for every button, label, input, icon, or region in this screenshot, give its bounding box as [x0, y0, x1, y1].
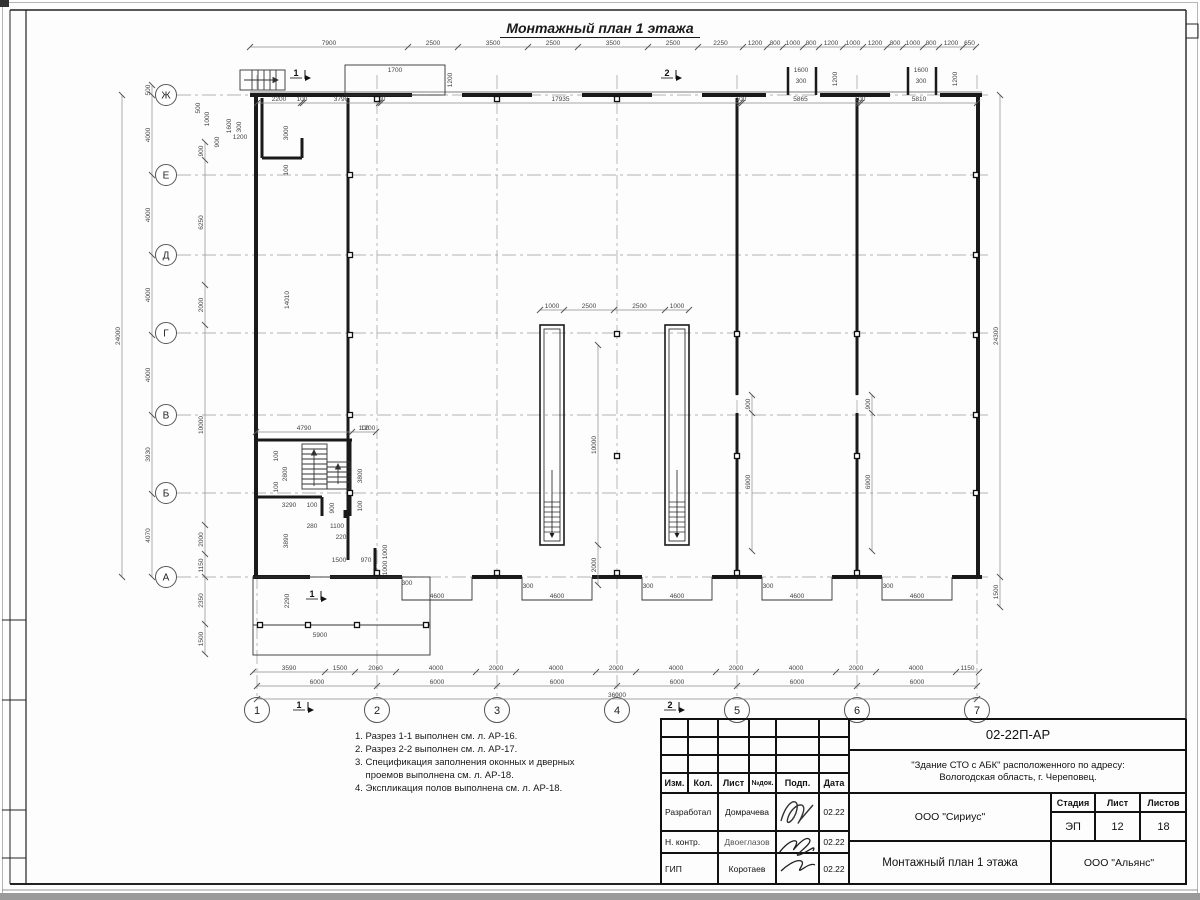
svg-text:6000: 6000 [670, 679, 685, 686]
axis-letter-Б: Б [163, 489, 170, 500]
drawing-sheet: ЖЕДГВБА1234567 [0, 0, 1200, 900]
svg-text:3930: 3930 [145, 447, 152, 462]
svg-text:10000: 10000 [591, 436, 598, 454]
axis-number-7: 7 [974, 705, 980, 717]
svg-text:2000: 2000 [609, 665, 624, 672]
axis-number-4: 4 [614, 705, 620, 717]
axis-number-3: 3 [494, 705, 500, 717]
sheet-number: 12 [1095, 812, 1140, 841]
svg-text:6000: 6000 [310, 679, 325, 686]
svg-text:2500: 2500 [546, 40, 561, 47]
svg-text:300: 300 [236, 121, 243, 132]
axis-letter-Е: Е [163, 171, 170, 182]
svg-text:1000: 1000 [846, 40, 861, 47]
svg-text:800: 800 [890, 40, 901, 47]
svg-text:1200: 1200 [824, 40, 839, 47]
axis-letter-В: В [163, 411, 170, 422]
axis-letter-Ж: Ж [161, 91, 171, 102]
svg-text:2060: 2060 [368, 665, 383, 672]
svg-text:2000: 2000 [849, 665, 864, 672]
svg-text:1500: 1500 [333, 665, 348, 672]
col-list: Лист [718, 773, 749, 793]
svg-text:970: 970 [361, 557, 372, 564]
svg-text:1000: 1000 [545, 303, 560, 310]
col-data: Дата [819, 773, 849, 793]
project-name: "Здание СТО с АБК" расположенного по адр… [849, 750, 1187, 793]
svg-text:24000: 24000 [115, 327, 122, 345]
svg-text:1600: 1600 [794, 67, 809, 74]
svg-text:100: 100 [297, 96, 308, 103]
svg-text:4000: 4000 [145, 287, 152, 302]
svg-text:900: 900 [198, 145, 205, 156]
row-developer-name: Домрачева [718, 793, 776, 831]
svg-text:1100: 1100 [330, 523, 344, 530]
svg-text:1200: 1200 [447, 72, 454, 87]
svg-text:900: 900 [865, 398, 872, 409]
row-ncontr-name: Двоеглазов [718, 831, 776, 853]
svg-text:2250: 2250 [713, 40, 728, 47]
svg-text:100: 100 [283, 164, 290, 175]
row-gip-signature [776, 853, 819, 885]
svg-text:500: 500 [195, 102, 202, 113]
svg-text:1600: 1600 [226, 118, 233, 133]
svg-text:1000: 1000 [786, 40, 801, 47]
page-title: Монтажный план 1 этажа [0, 20, 1200, 36]
svg-text:1200: 1200 [361, 425, 376, 432]
svg-text:17935: 17935 [551, 96, 569, 103]
svg-text:900: 900 [214, 136, 221, 147]
svg-text:2200: 2200 [272, 96, 287, 103]
svg-text:900: 900 [329, 502, 336, 513]
svg-text:5865: 5865 [793, 96, 808, 103]
svg-text:1500: 1500 [198, 631, 205, 646]
svg-text:2000: 2000 [489, 665, 504, 672]
section-mark-1: 1 [309, 589, 314, 599]
drawing-title: Монтажный план 1 этажа [849, 841, 1051, 885]
svg-text:2500: 2500 [582, 303, 597, 310]
section-mark-2: 2 [667, 700, 672, 710]
section-mark-1: 1 [293, 68, 298, 78]
contractor-org: ООО "Альянс" [1051, 841, 1187, 885]
svg-text:100: 100 [307, 502, 318, 509]
svg-text:100: 100 [273, 450, 280, 461]
svg-text:100: 100 [273, 481, 280, 492]
col-izm: Изм. [661, 773, 688, 793]
row-gip-role: ГИП [661, 853, 718, 885]
svg-text:1000: 1000 [204, 111, 211, 126]
row-developer-signature [776, 793, 819, 831]
svg-text:800: 800 [806, 40, 817, 47]
svg-text:2350: 2350 [198, 593, 205, 608]
svg-text:1200: 1200 [944, 40, 959, 47]
row-ncontr-role: Н. контр. [661, 831, 718, 853]
svg-text:4000: 4000 [909, 665, 924, 672]
svg-text:1500: 1500 [332, 557, 347, 564]
svg-text:4600: 4600 [430, 593, 445, 600]
svg-text:1150: 1150 [961, 665, 975, 672]
svg-text:1200: 1200 [233, 134, 248, 141]
svg-text:10000: 10000 [198, 416, 205, 434]
shaft-right [665, 325, 689, 545]
svg-text:300: 300 [796, 78, 807, 85]
svg-text:1000: 1000 [382, 560, 389, 575]
svg-text:4000: 4000 [789, 665, 804, 672]
svg-text:1200: 1200 [832, 71, 839, 86]
axis-letter-Д: Д [163, 251, 170, 262]
svg-text:6250: 6250 [198, 215, 205, 230]
dimensions-layer: 7900250035002500350025002250120080010008… [115, 40, 1003, 702]
svg-text:6900: 6900 [745, 474, 752, 489]
stage-label: Стадия [1051, 793, 1095, 812]
axis-number-5: 5 [734, 705, 740, 717]
svg-text:280: 280 [307, 523, 318, 530]
svg-text:300: 300 [916, 78, 927, 85]
svg-text:2500: 2500 [426, 40, 441, 47]
col-ndok: №док. [749, 773, 776, 793]
svg-text:300: 300 [763, 583, 774, 590]
svg-text:900: 900 [745, 398, 752, 409]
svg-text:1150: 1150 [198, 558, 205, 572]
svg-text:800: 800 [770, 40, 781, 47]
svg-text:4000: 4000 [549, 665, 564, 672]
svg-text:1700: 1700 [388, 67, 403, 74]
doc-code: 02-22П-АР [849, 719, 1187, 750]
svg-text:3800: 3800 [357, 468, 364, 483]
svg-text:4790: 4790 [297, 425, 312, 432]
svg-text:4070: 4070 [145, 528, 152, 543]
section-mark-1: 1 [296, 700, 301, 710]
svg-text:2500: 2500 [632, 303, 647, 310]
row-ncontr-date: 02.22 [819, 831, 849, 853]
axis-number-6: 6 [854, 705, 860, 717]
svg-text:2000: 2000 [591, 557, 598, 572]
svg-text:300: 300 [402, 580, 413, 587]
svg-text:1200: 1200 [748, 40, 763, 47]
svg-text:800: 800 [926, 40, 937, 47]
svg-text:6900: 6900 [865, 474, 872, 489]
axis-letter-А: А [163, 573, 170, 584]
svg-text:1200: 1200 [868, 40, 883, 47]
row-gip-name: Коротаев [718, 853, 776, 885]
axis-number-2: 2 [374, 705, 380, 717]
svg-text:100: 100 [736, 96, 747, 103]
row-ncontr-signature [776, 831, 819, 853]
section-mark-2: 2 [664, 68, 669, 78]
svg-text:100: 100 [357, 500, 364, 511]
svg-text:4600: 4600 [550, 593, 565, 600]
svg-text:3500: 3500 [606, 40, 621, 47]
row-developer-date: 02.22 [819, 793, 849, 831]
row-developer-role: Разработал [661, 793, 718, 831]
shaft-left [540, 325, 564, 545]
svg-text:2000: 2000 [198, 297, 205, 312]
svg-text:100: 100 [855, 96, 866, 103]
svg-text:4000: 4000 [429, 665, 444, 672]
stage-value: ЭП [1051, 812, 1095, 841]
svg-text:5810: 5810 [912, 96, 927, 103]
svg-text:300: 300 [883, 583, 894, 590]
axis-number-1: 1 [254, 705, 260, 717]
svg-text:36000: 36000 [608, 692, 626, 699]
svg-text:3590: 3590 [282, 665, 297, 672]
design-org: ООО "Сириус" [849, 793, 1051, 841]
svg-text:6000: 6000 [430, 679, 445, 686]
svg-text:500: 500 [145, 84, 152, 95]
svg-text:4600: 4600 [910, 593, 925, 600]
svg-text:3500: 3500 [486, 40, 501, 47]
svg-text:3890: 3890 [283, 533, 290, 548]
svg-text:4600: 4600 [670, 593, 685, 600]
svg-text:2000: 2000 [729, 665, 744, 672]
svg-text:220: 220 [336, 534, 347, 541]
svg-text:1600: 1600 [914, 67, 929, 74]
svg-text:1200: 1200 [952, 71, 959, 86]
svg-text:3000: 3000 [283, 125, 290, 140]
svg-text:300: 300 [643, 583, 654, 590]
svg-text:650: 650 [964, 40, 975, 47]
svg-text:6000: 6000 [790, 679, 805, 686]
svg-text:4000: 4000 [145, 207, 152, 222]
svg-text:6000: 6000 [550, 679, 565, 686]
sheets-label: Листов [1140, 793, 1187, 812]
svg-text:4000: 4000 [145, 367, 152, 382]
svg-text:4000: 4000 [669, 665, 684, 672]
axis-letter-Г: Г [163, 329, 169, 340]
svg-text:1000: 1000 [906, 40, 921, 47]
svg-text:7900: 7900 [322, 40, 337, 47]
svg-text:4000: 4000 [145, 127, 152, 142]
svg-text:3790: 3790 [334, 96, 349, 103]
notes-block: 1. Разрез 1-1 выполнен см. л. АР-16. 2. … [355, 730, 575, 795]
svg-text:3290: 3290 [282, 502, 297, 509]
svg-text:4600: 4600 [790, 593, 805, 600]
svg-text:6000: 6000 [910, 679, 925, 686]
svg-text:1000: 1000 [670, 303, 685, 310]
sheet-label: Лист [1095, 793, 1140, 812]
col-podp: Подп. [776, 773, 819, 793]
svg-text:5900: 5900 [313, 632, 328, 639]
svg-text:14010: 14010 [284, 291, 291, 309]
col-kol: Кол. [688, 773, 718, 793]
svg-text:2500: 2500 [666, 40, 681, 47]
sheets-total: 18 [1140, 812, 1187, 841]
title-block: Изм. Кол. Лист №док. Подп. Дата Разработ… [660, 718, 1186, 884]
svg-text:24300: 24300 [993, 327, 1000, 345]
svg-text:2000: 2000 [198, 532, 205, 547]
row-gip-date: 02.22 [819, 853, 849, 885]
svg-text:2800: 2800 [282, 466, 289, 481]
svg-text:1000: 1000 [382, 544, 389, 559]
svg-text:2290: 2290 [284, 593, 291, 608]
svg-text:300: 300 [523, 583, 534, 590]
svg-text:1500: 1500 [993, 584, 1000, 599]
